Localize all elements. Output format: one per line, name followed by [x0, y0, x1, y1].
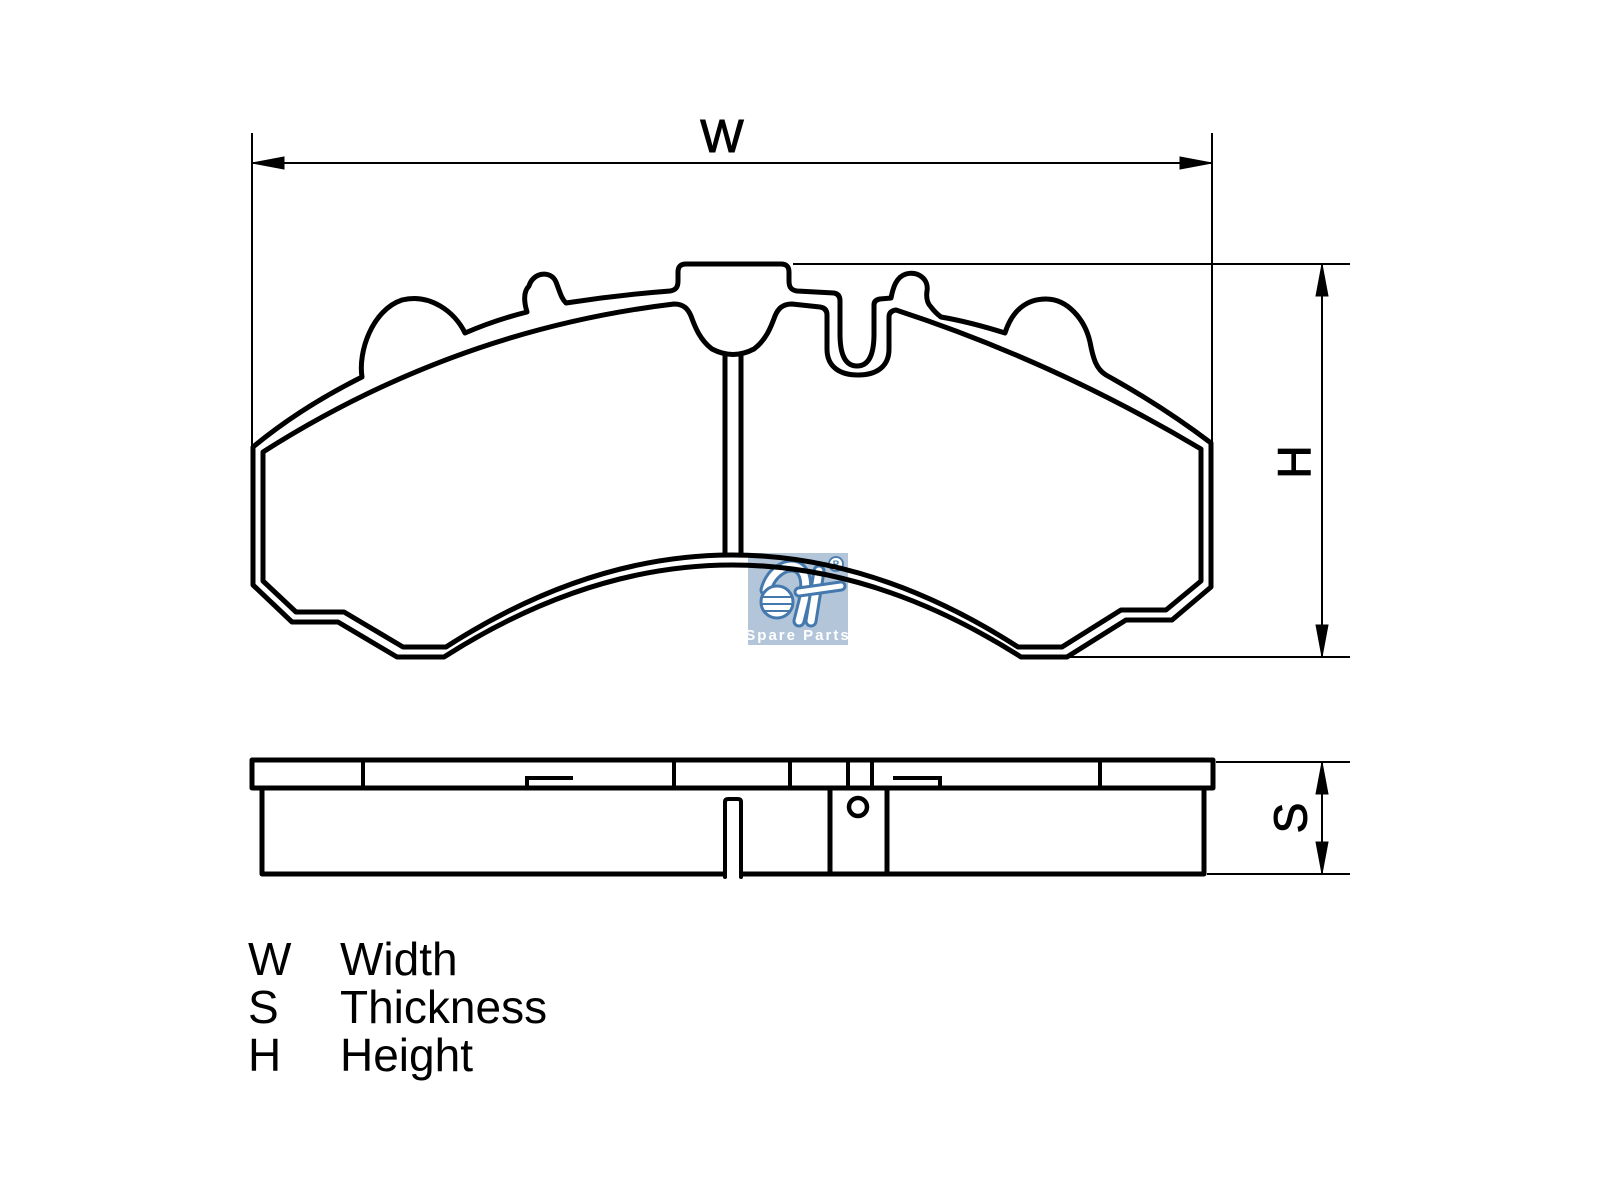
legend-symbol-h: H	[248, 1029, 281, 1081]
page: R Spare Parts W H	[0, 0, 1600, 1200]
legend-symbol-w: W	[248, 933, 292, 985]
dim-h-label: H	[1269, 445, 1321, 478]
side-backplate-strip	[252, 760, 1213, 788]
dim-w-arrow-right	[1180, 157, 1212, 169]
watermark-subtitle: Spare Parts	[745, 627, 850, 644]
dim-w-arrow-left	[252, 157, 284, 169]
dimension-w: W	[252, 110, 1212, 447]
dimension-s: S	[1207, 762, 1350, 874]
dt-logo-globe-icon	[761, 586, 793, 618]
legend-row-width: W Width	[248, 933, 458, 985]
dim-s-arrow-bottom	[1316, 842, 1328, 874]
dimension-h: H	[793, 264, 1350, 657]
dim-h-arrow-top	[1316, 264, 1328, 296]
technical-drawing-canvas: R Spare Parts W H	[0, 0, 1600, 1200]
side-hole	[849, 798, 867, 816]
side-groove-slot	[725, 799, 741, 877]
dim-s-arrow-top	[1316, 762, 1328, 794]
pad-inner-contour	[263, 304, 1201, 647]
legend-label-height: Height	[340, 1029, 473, 1081]
legend-row-thickness: S Thickness	[248, 981, 547, 1033]
dim-h-arrow-bottom	[1316, 625, 1328, 657]
pad-outer-contour	[253, 264, 1211, 657]
dim-s-label: S	[1265, 803, 1317, 834]
legend-label-thickness: Thickness	[340, 981, 547, 1033]
legend-label-width: Width	[340, 933, 458, 985]
pad-side-view	[252, 760, 1213, 877]
dim-w-label: W	[700, 110, 744, 162]
legend-row-height: H Height	[248, 1029, 473, 1081]
legend-symbol-s: S	[248, 981, 279, 1033]
side-strip-dividers	[363, 760, 1100, 788]
side-block-dividers	[830, 788, 887, 874]
pad-center-slot	[725, 356, 741, 553]
legend: W Width S Thickness H Height	[248, 933, 547, 1081]
pad-front-view	[253, 264, 1211, 657]
